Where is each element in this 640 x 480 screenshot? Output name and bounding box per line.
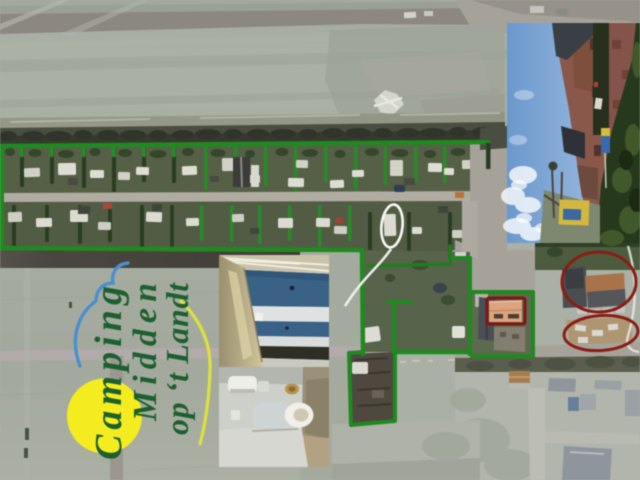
- svg-text:op ‘t Landt: op ‘t Landt: [159, 282, 195, 435]
